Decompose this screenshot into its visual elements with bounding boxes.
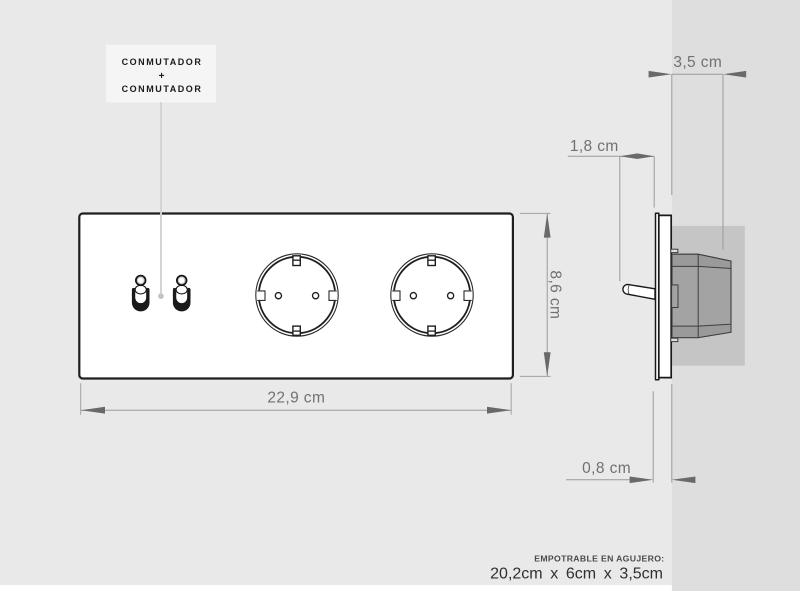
svg-text:1,8 cm: 1,8 cm: [570, 138, 619, 155]
svg-text:EMPOTRABLE EN AGUJERO:: EMPOTRABLE EN AGUJERO:: [534, 553, 664, 563]
svg-text:CONMUTADOR: CONMUTADOR: [122, 57, 203, 67]
svg-text:+: +: [159, 71, 165, 82]
svg-text:8,6 cm: 8,6 cm: [547, 270, 564, 319]
svg-text:0,8 cm: 0,8 cm: [582, 460, 631, 477]
svg-text:3,5 cm: 3,5 cm: [673, 54, 722, 71]
svg-text:20,2cm x 6cm x 3,5cm: 20,2cm x 6cm x 3,5cm: [490, 565, 663, 582]
svg-text:22,9 cm: 22,9 cm: [267, 390, 325, 407]
svg-text:CONMUTADOR: CONMUTADOR: [122, 84, 203, 94]
